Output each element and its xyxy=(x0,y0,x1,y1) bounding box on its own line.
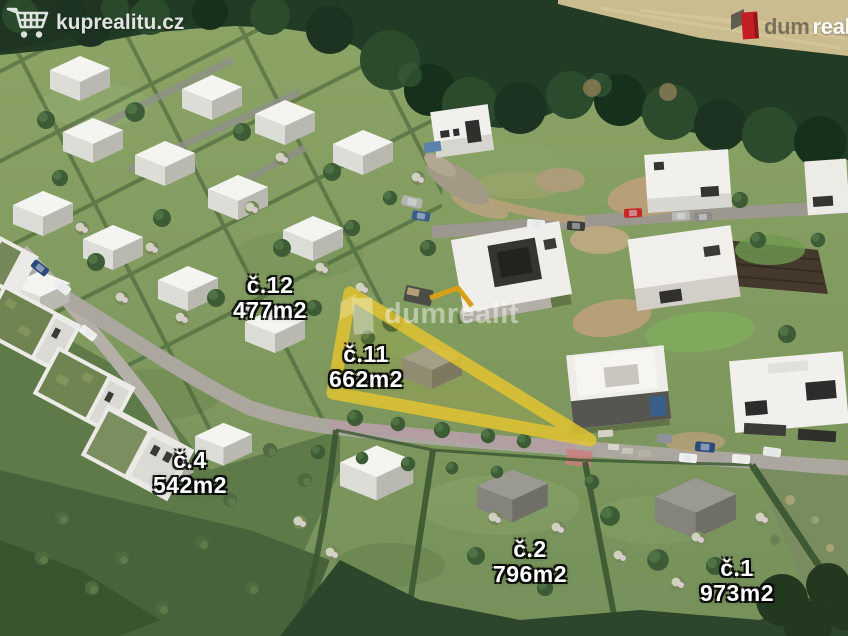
plot-number: č.1 xyxy=(700,556,774,581)
plot-label-c4: č.4 542m2 xyxy=(153,448,227,498)
plot-label-c1: č.1 973m2 xyxy=(700,556,774,606)
plot-number: č.2 xyxy=(493,537,567,562)
brand-logo-prefix: dum xyxy=(764,14,810,40)
watermark-kuprealitu-text: kuprealitu.cz xyxy=(56,11,184,35)
brand-logo-main: realit xyxy=(813,14,848,40)
plot-area: 973m2 xyxy=(700,581,774,606)
plot-area: 542m2 xyxy=(153,473,227,498)
plot-area: 662m2 xyxy=(329,367,403,392)
watermark-dumrealit-text: dumrealit xyxy=(384,298,519,331)
plot-area: 796m2 xyxy=(493,562,567,587)
brand-logo-dumrealit: dumrealit.c xyxy=(731,6,848,40)
dumrealit-logo-icon xyxy=(731,6,761,40)
plot-label-c12: č.12 477m2 xyxy=(233,273,307,323)
listing-aerial-photo: kuprealitu.cz dumrealit.c dumrealit č.12… xyxy=(0,0,848,636)
dumrealit-watermark-icon xyxy=(340,290,376,338)
watermark-dumrealit-center: dumrealit xyxy=(340,290,519,338)
plot-label-c2: č.2 796m2 xyxy=(493,537,567,587)
plot-area: 477m2 xyxy=(233,298,307,323)
plot-number: č.11 xyxy=(329,342,403,367)
watermark-kuprealitu: kuprealitu.cz xyxy=(6,3,184,43)
plot-number: č.4 xyxy=(153,448,227,473)
plot-label-c11: č.11 662m2 xyxy=(329,342,403,392)
shopping-cart-icon xyxy=(6,3,50,43)
plot-number: č.12 xyxy=(233,273,307,298)
